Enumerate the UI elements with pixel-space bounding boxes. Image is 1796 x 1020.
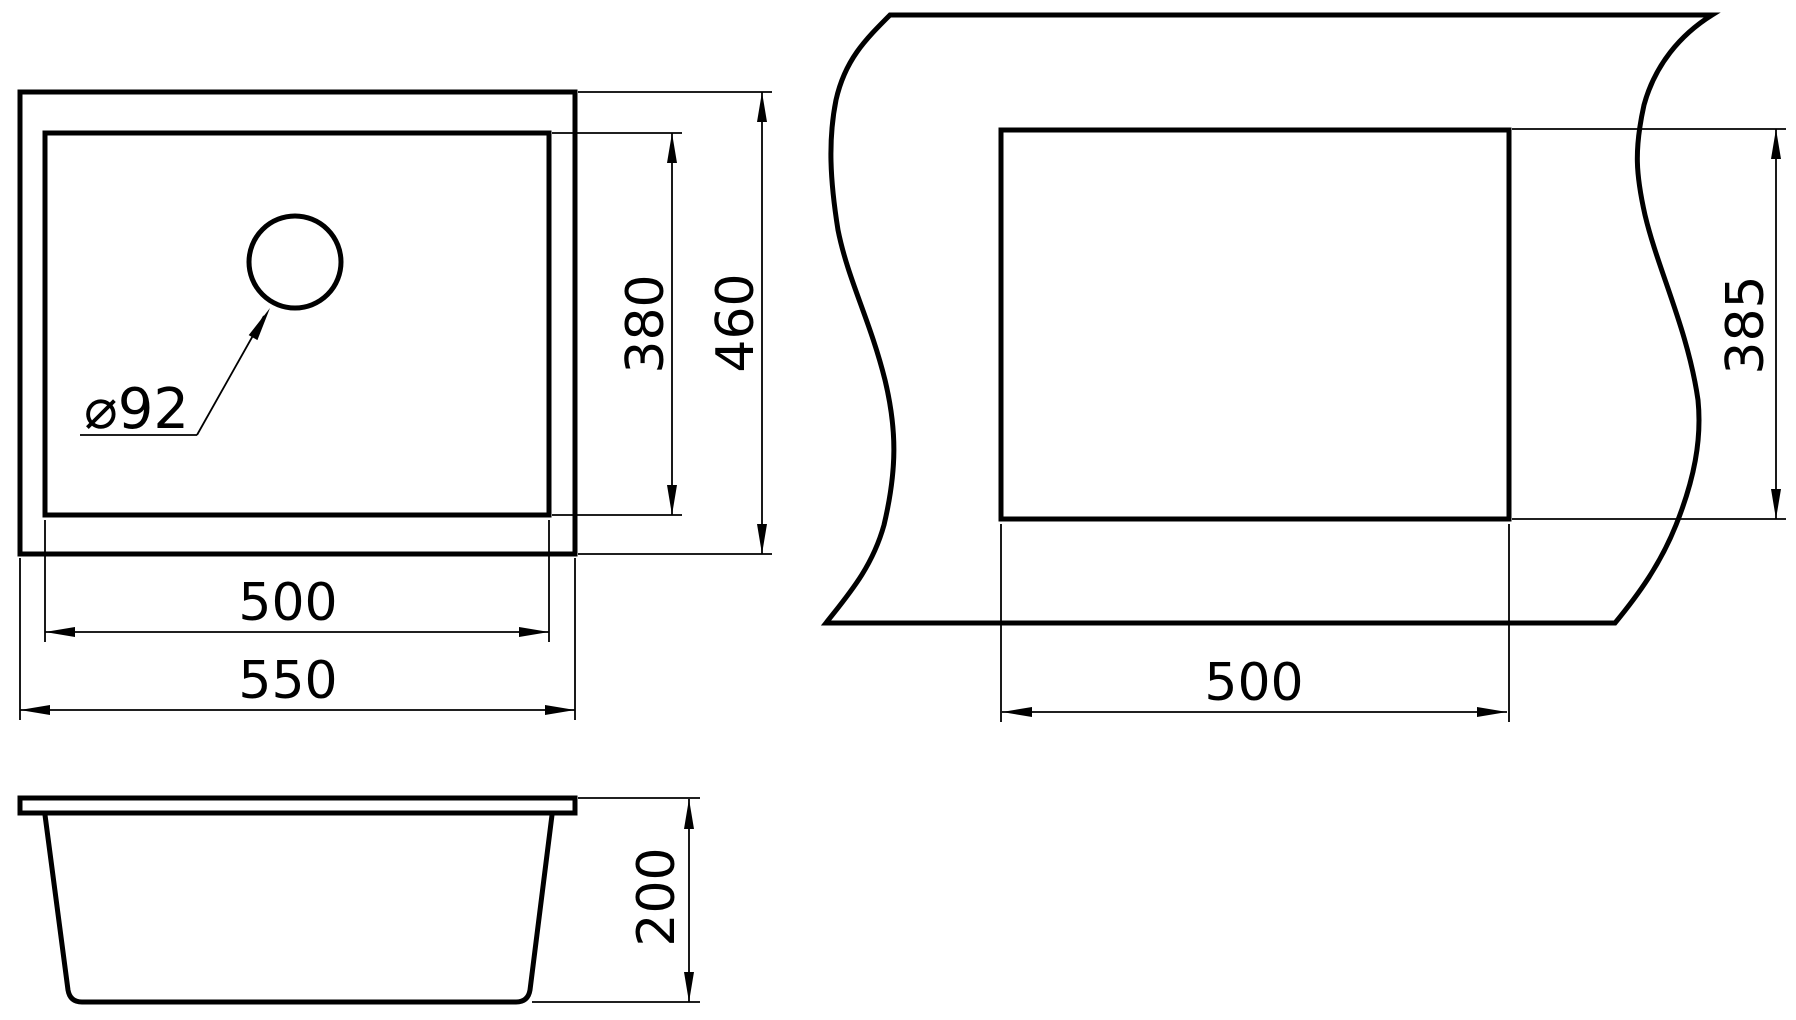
dim-side-depth: 200 — [532, 798, 700, 1002]
dim-inner-width: 500 — [45, 520, 549, 642]
arrowhead-down — [757, 524, 767, 554]
cutout-height-label: 385 — [1716, 275, 1776, 374]
inner-width-label: 500 — [238, 573, 337, 633]
arrowhead-up — [684, 799, 694, 829]
drain-diameter-label: ⌀92 — [84, 377, 189, 442]
arrowhead-left — [1002, 707, 1032, 717]
outer-width-label: 550 — [238, 651, 337, 711]
arrowhead-right — [1477, 707, 1507, 717]
drain-hole-circle — [249, 216, 341, 308]
dim-cutout-height: 385 — [1512, 129, 1786, 519]
drain-leader-arrowhead — [249, 308, 270, 340]
arrowhead-left — [20, 705, 50, 715]
side-depth-label: 200 — [627, 847, 687, 946]
arrowhead-right — [545, 705, 575, 715]
top-view-inner-rect — [45, 133, 549, 515]
technical-drawing: ⌀92 380 460 500 — [0, 0, 1796, 1020]
side-view-rim — [20, 798, 575, 813]
cutout-view: 385 500 — [826, 15, 1786, 722]
top-view-outer-rect — [20, 92, 575, 554]
dim-inner-depth: 380 — [552, 133, 682, 515]
side-view: 200 — [20, 798, 700, 1002]
cutout-rect — [1001, 130, 1509, 519]
arrowhead-left — [45, 627, 75, 637]
arrowhead-down — [684, 972, 694, 1002]
inner-depth-label: 380 — [616, 274, 676, 373]
top-view: ⌀92 380 460 500 — [20, 92, 772, 720]
arrowhead-up — [1771, 129, 1781, 159]
arrowhead-up — [757, 92, 767, 122]
drain-leader: ⌀92 — [80, 308, 270, 442]
cutout-width-label: 500 — [1204, 653, 1303, 713]
countertop-outline — [826, 15, 1712, 623]
arrowhead-up — [667, 133, 677, 163]
outer-depth-label: 460 — [706, 273, 766, 372]
arrowhead-down — [667, 485, 677, 515]
side-view-body — [45, 815, 552, 1002]
arrowhead-right — [519, 627, 549, 637]
arrowhead-down — [1771, 489, 1781, 519]
